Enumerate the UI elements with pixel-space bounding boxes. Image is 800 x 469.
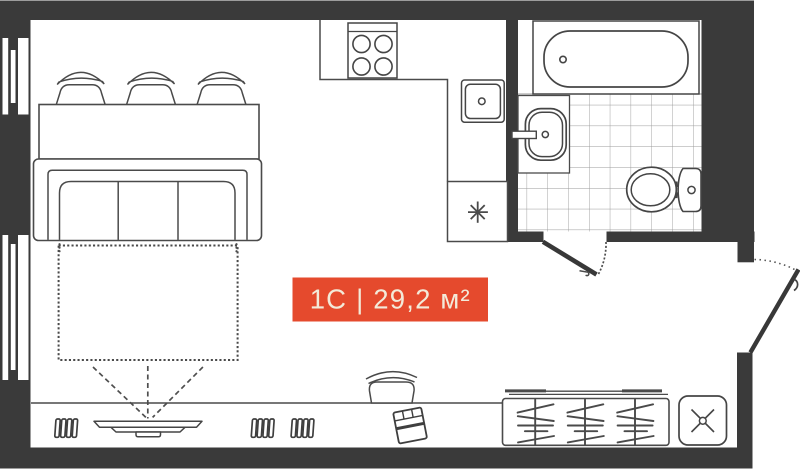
svg-text:1С | 29,2 м²: 1С | 29,2 м² (310, 284, 471, 315)
